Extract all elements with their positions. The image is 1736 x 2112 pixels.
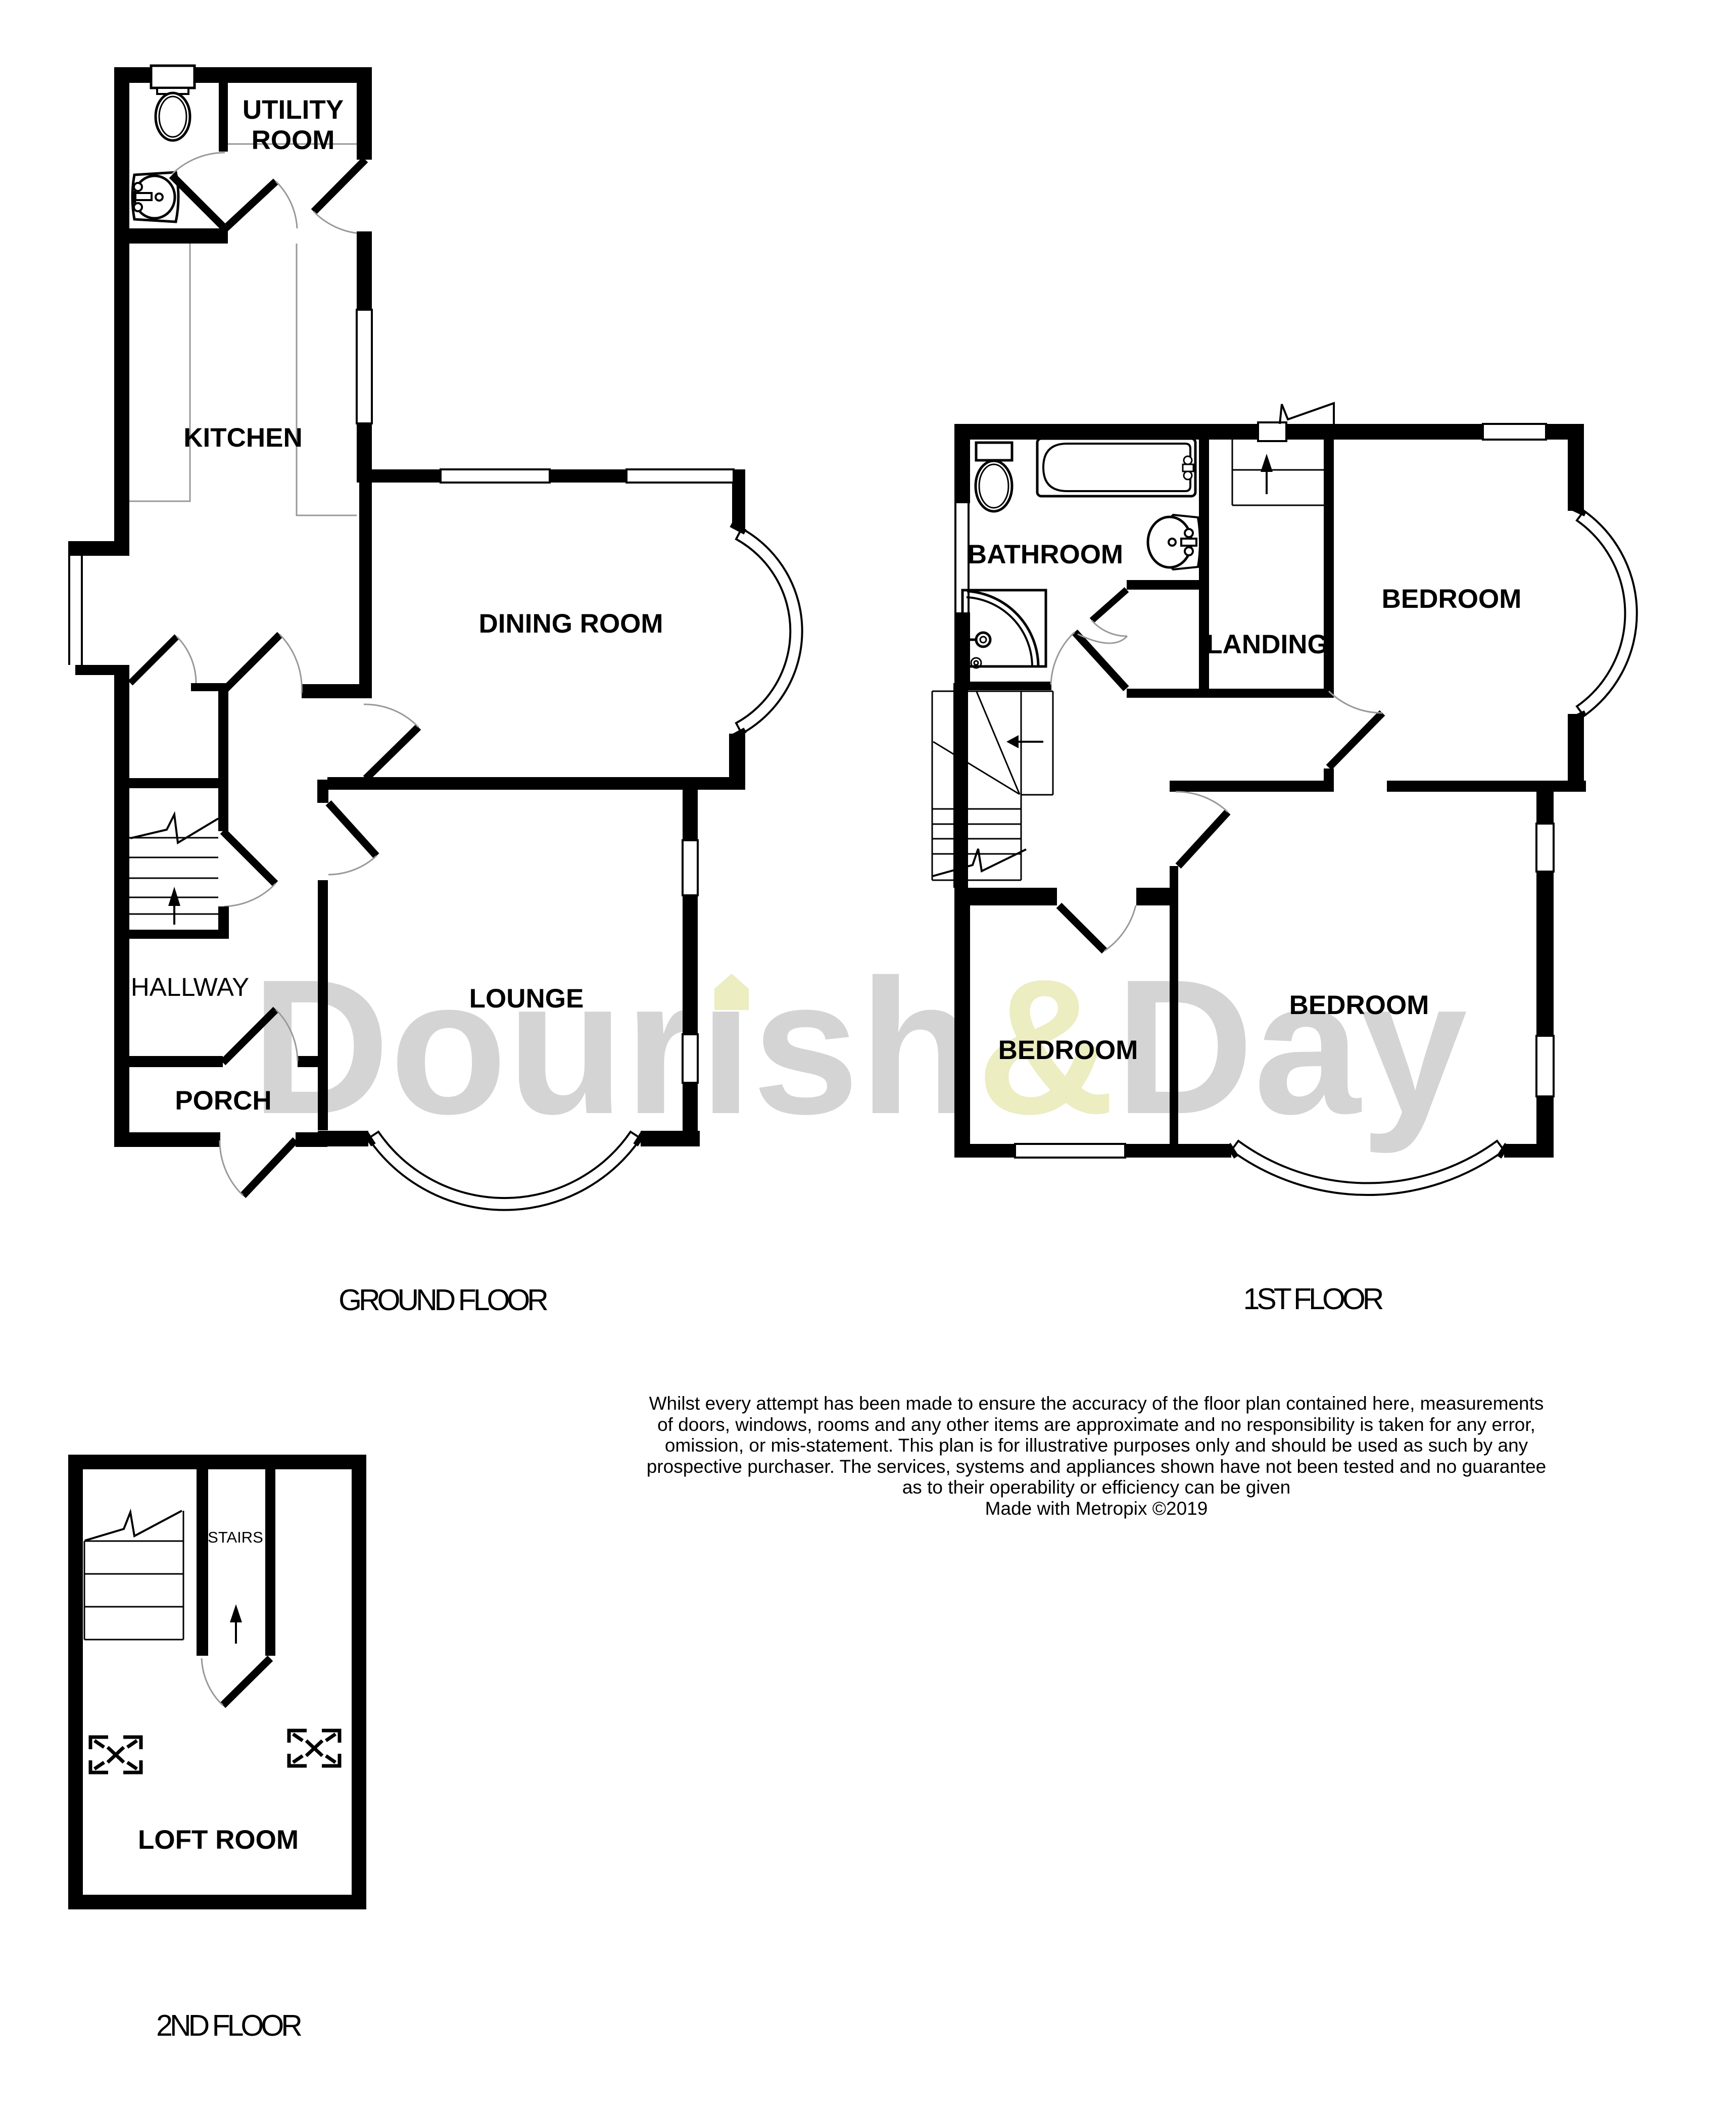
svg-text:GROUND FLOOR: GROUND FLOOR [339, 1283, 547, 1317]
svg-text:UTILITY: UTILITY [243, 95, 344, 125]
svg-text:HALLWAY: HALLWAY [131, 973, 249, 1001]
svg-text:as to their operability or eff: as to their operability or efficiency ca… [902, 1477, 1291, 1498]
svg-text:PORCH: PORCH [175, 1086, 271, 1116]
svg-text:KITCHEN: KITCHEN [183, 423, 303, 453]
svg-text:Whilst every attempt has been: Whilst every attempt has been made to en… [649, 1393, 1544, 1414]
svg-text:DINING ROOM: DINING ROOM [478, 609, 663, 639]
svg-text:of doors, windows, rooms and a: of doors, windows, rooms and any other i… [657, 1414, 1535, 1435]
svg-text:LOUNGE: LOUNGE [469, 984, 584, 1014]
svg-text:BATHROOM: BATHROOM [968, 540, 1123, 569]
svg-text:LOFT ROOM: LOFT ROOM [138, 1825, 299, 1855]
svg-text:Made with Metropix ©2019: Made with Metropix ©2019 [985, 1498, 1208, 1519]
svg-text:2ND FLOOR: 2ND FLOOR [156, 2009, 301, 2042]
svg-text:BEDROOM: BEDROOM [1289, 990, 1429, 1020]
svg-text:STAIRS: STAIRS [208, 1528, 263, 1546]
svg-text:Dourısh&Day: Dourısh&Day [251, 939, 1469, 1155]
svg-text:BEDROOM: BEDROOM [998, 1035, 1138, 1065]
svg-text:omission, or mis-statement. Th: omission, or mis-statement. This plan is… [665, 1435, 1528, 1456]
svg-text:1ST FLOOR: 1ST FLOOR [1243, 1282, 1383, 1316]
svg-text:ROOM: ROOM [252, 125, 335, 155]
svg-text:prospective purchaser. The ser: prospective purchaser. The services, sys… [647, 1456, 1547, 1477]
svg-text:BEDROOM: BEDROOM [1382, 584, 1522, 614]
svg-text:LANDING: LANDING [1206, 630, 1328, 659]
